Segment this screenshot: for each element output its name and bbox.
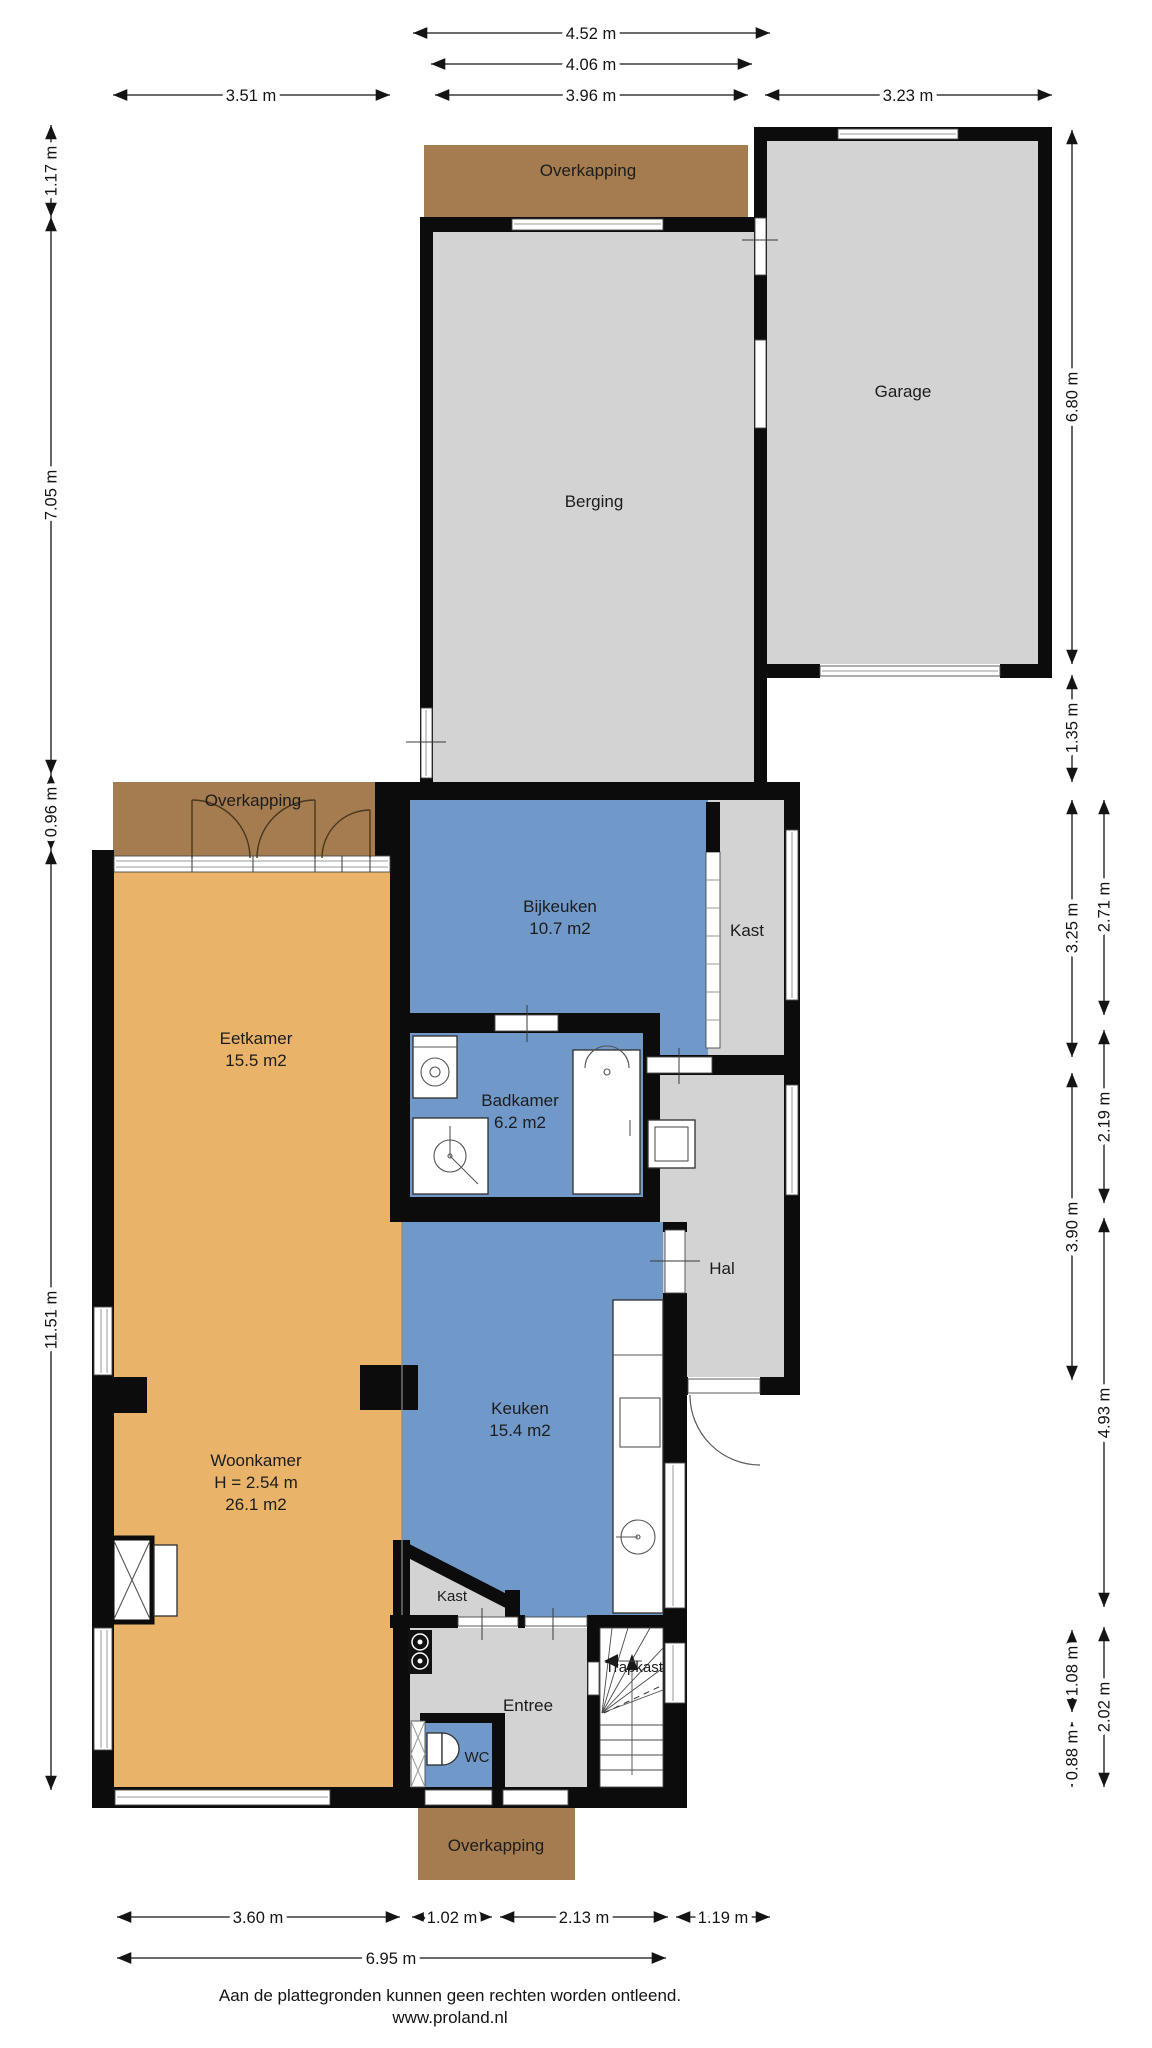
svg-text:6.80 m: 6.80 m	[1064, 372, 1082, 422]
dim-top-452: 4.52 m	[413, 25, 770, 43]
window-south-wc	[425, 1790, 492, 1805]
window-south-entree	[503, 1790, 568, 1805]
label-kast-bijkeuken: Kast	[730, 921, 764, 940]
svg-text:3.23 m: 3.23 m	[883, 87, 933, 105]
svg-text:4.06 m: 4.06 m	[566, 56, 616, 74]
dim-top-406: 4.06 m	[431, 56, 752, 74]
shower-icon	[413, 1118, 488, 1194]
window-east-trap	[665, 1643, 685, 1703]
label-eetkamer: Eetkamer	[220, 1029, 293, 1048]
dim-left-117: 1.17 m	[43, 125, 61, 217]
label-hal: Hal	[709, 1259, 735, 1278]
wc-hatch	[411, 1721, 425, 1787]
footer-disclaimer: Aan de plattegronden kunnen geen rechten…	[219, 1986, 681, 2005]
dim-right-390: 3.90 m	[1064, 1073, 1082, 1380]
footer-website: www.proland.nl	[391, 2008, 507, 2027]
room-overkapping-top	[424, 145, 748, 217]
dim-bottom-102: 1.02 m	[412, 1909, 492, 1927]
label-woonkamer: Woonkamer	[210, 1451, 302, 1470]
label-eetkamer-area: 15.5 m2	[225, 1051, 286, 1070]
label-keuken: Keuken	[491, 1399, 549, 1418]
label-overkapping-top: Overkapping	[540, 161, 636, 180]
label-woonkamer-height: H = 2.54 m	[214, 1473, 298, 1492]
dim-left-1151: 11.51 m	[43, 850, 61, 1790]
label-wc: WC	[465, 1749, 490, 1766]
svg-text:1.17 m: 1.17 m	[43, 146, 61, 196]
floor-plan-page: 4.52 m 4.06 m 3.51 m 3.96 m 3.23 m 1.17 …	[0, 0, 1152, 2048]
label-berging: Berging	[565, 492, 624, 511]
label-woonkamer-area: 26.1 m2	[225, 1495, 286, 1514]
footer: Aan de plattegronden kunnen geen rechten…	[219, 1986, 681, 2027]
fireplace-icon	[112, 1538, 177, 1622]
dim-right-271: 2.71 m	[1096, 800, 1114, 1015]
dim-right-680: 6.80 m	[1064, 130, 1082, 664]
window-east-keuken	[665, 1463, 685, 1608]
svg-text:0.88 m: 0.88 m	[1064, 1730, 1082, 1780]
svg-text:7.05 m: 7.05 m	[43, 470, 61, 520]
kitchen-counter	[613, 1300, 663, 1613]
svg-text:1.02 m: 1.02 m	[427, 1909, 477, 1927]
room-bijkeuken-strip	[660, 1013, 708, 1059]
badkamer-door	[573, 1046, 640, 1194]
svg-text:3.60 m: 3.60 m	[233, 1909, 283, 1927]
svg-text:6.95 m: 6.95 m	[366, 1950, 416, 1968]
room-eetkamer-woonkamer	[114, 872, 402, 1787]
doorway-keuken-entree-2	[525, 1617, 587, 1626]
svg-text:0.96 m: 0.96 m	[43, 787, 61, 837]
window-berging-garage-1	[755, 218, 766, 275]
dim-right-108: 1.08 m	[1064, 1630, 1082, 1712]
room-garage	[767, 141, 1038, 664]
dim-top-396: 3.96 m	[435, 87, 748, 105]
label-badkamer-area: 6.2 m2	[494, 1113, 546, 1132]
svg-text:2.71 m: 2.71 m	[1096, 882, 1114, 932]
window-berging-garage-2	[755, 340, 766, 428]
svg-text:4.93 m: 4.93 m	[1096, 1388, 1114, 1438]
front-door-arc	[690, 1395, 760, 1465]
doorway-trapkast	[588, 1662, 599, 1695]
dim-top-323: 3.23 m	[765, 87, 1052, 105]
label-bijkeuken: Bijkeuken	[523, 897, 597, 916]
meterkast-icon	[648, 1120, 695, 1168]
window-west-eetkamer	[94, 1307, 112, 1375]
window-west-woonkamer	[94, 1628, 112, 1750]
dim-right-135: 1.35 m	[1064, 675, 1082, 782]
svg-text:2.02 m: 2.02 m	[1096, 1682, 1114, 1732]
doorway-keuken-entree-1	[458, 1617, 518, 1626]
dim-bottom-213: 2.13 m	[500, 1909, 668, 1927]
svg-text:3.51 m: 3.51 m	[226, 87, 276, 105]
kast-louvre-door	[706, 802, 720, 1048]
svg-text:1.19 m: 1.19 m	[698, 1909, 748, 1927]
dim-right-325: 3.25 m	[1064, 800, 1082, 1057]
svg-text:4.52 m: 4.52 m	[566, 25, 616, 43]
label-badkamer: Badkamer	[481, 1091, 559, 1110]
label-kast-keuken: Kast	[437, 1588, 468, 1605]
svg-text:1.08 m: 1.08 m	[1064, 1646, 1082, 1696]
dim-bottom-360: 3.60 m	[117, 1909, 400, 1927]
washing-machine-icon	[413, 1036, 457, 1098]
label-overkapping-bottom: Overkapping	[448, 1836, 544, 1855]
svg-text:11.51 m: 11.51 m	[43, 1291, 61, 1349]
dim-left-096: 0.96 m	[43, 774, 61, 850]
dim-right-493: 4.93 m	[1096, 1218, 1114, 1607]
floor-plan: 4.52 m 4.06 m 3.51 m 3.96 m 3.23 m 1.17 …	[0, 0, 1152, 2048]
label-bijkeuken-area: 10.7 m2	[529, 919, 590, 938]
label-trapkast: Trapkast	[605, 1659, 664, 1676]
label-keuken-area: 15.4 m2	[489, 1421, 550, 1440]
svg-text:3.96 m: 3.96 m	[566, 87, 616, 105]
dim-left-705: 7.05 m	[43, 217, 61, 774]
dim-right-219: 2.19 m	[1096, 1030, 1114, 1203]
svg-text:2.13 m: 2.13 m	[559, 1909, 609, 1927]
svg-text:3.25 m: 3.25 m	[1064, 903, 1082, 953]
dim-top-351: 3.51 m	[113, 87, 390, 105]
label-garage: Garage	[875, 382, 932, 401]
label-overkapping-left: Overkapping	[205, 791, 301, 810]
svg-text:1.35 m: 1.35 m	[1064, 703, 1082, 753]
stove-icon	[408, 1630, 432, 1674]
dim-right-202: 2.02 m	[1096, 1627, 1114, 1787]
svg-text:3.90 m: 3.90 m	[1064, 1202, 1082, 1252]
dim-right-088: 0.88 m	[1064, 1722, 1082, 1787]
dim-bottom-695: 6.95 m	[117, 1950, 666, 1968]
glass-wall-eetkamer	[114, 856, 390, 872]
toilet-icon	[427, 1733, 459, 1765]
svg-text:2.19 m: 2.19 m	[1096, 1092, 1114, 1142]
dim-bottom-119: 1.19 m	[676, 1909, 770, 1927]
front-door-leaf	[688, 1379, 760, 1393]
label-entree: Entree	[503, 1696, 553, 1715]
